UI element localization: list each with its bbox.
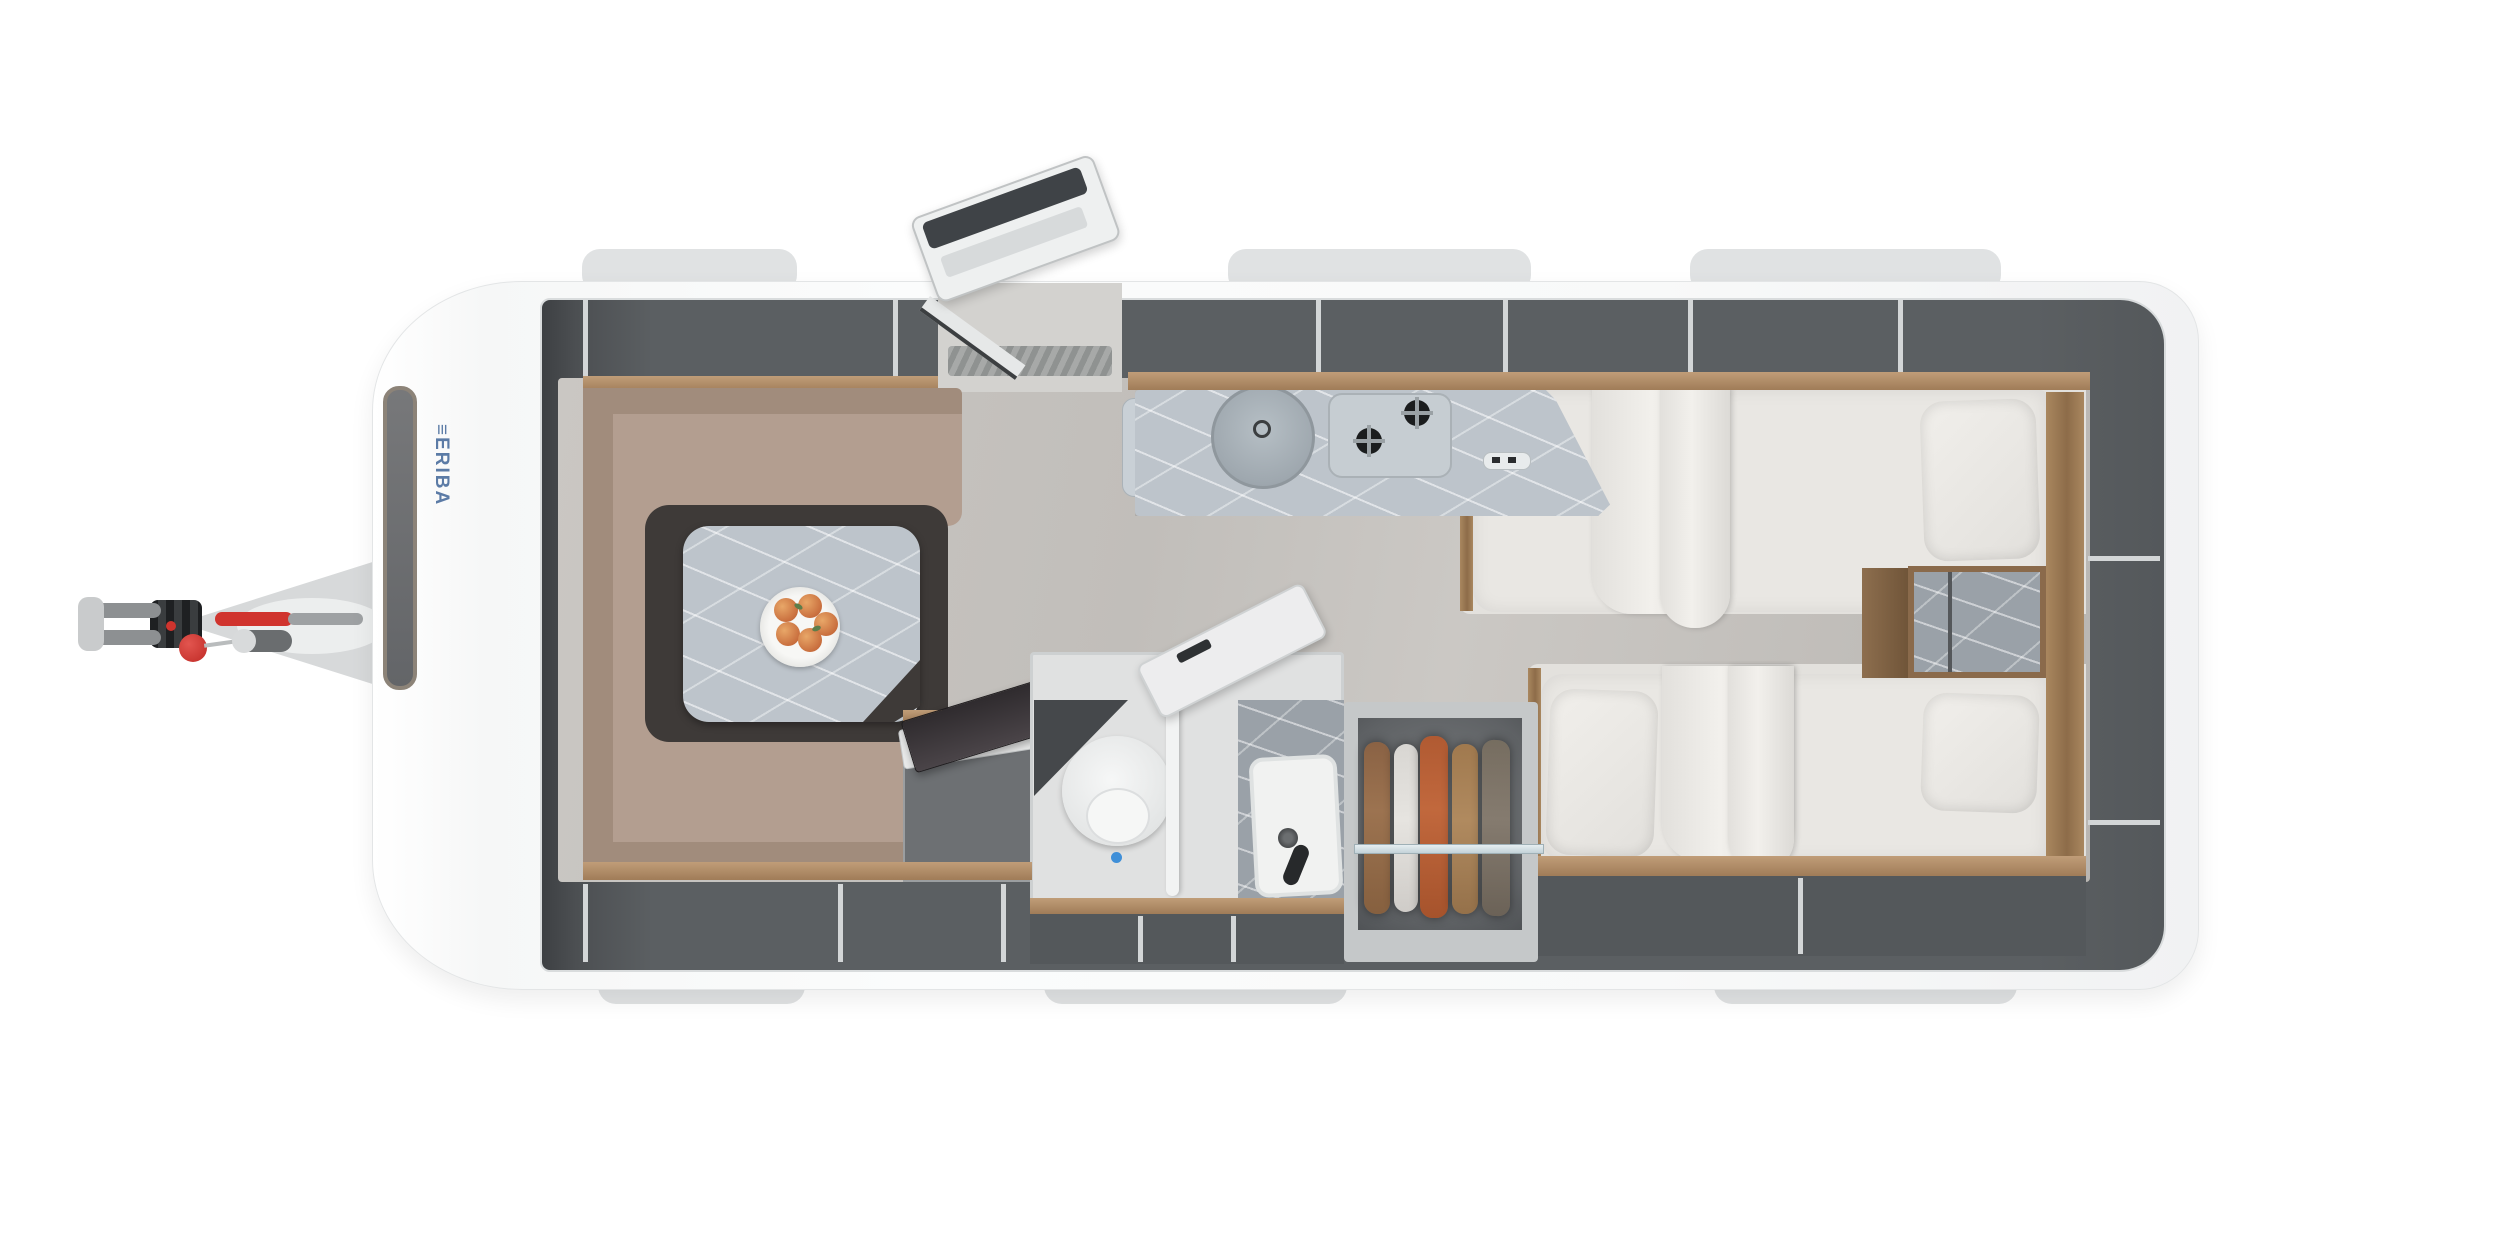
top-locker-divider-5 <box>1688 300 1693 374</box>
dinette-base-divider-1 <box>583 884 588 962</box>
top-locker-divider-6 <box>1898 300 1903 374</box>
bedside-chest-divider <box>1948 572 1952 672</box>
bed-bench-wood-top <box>1537 856 2086 876</box>
jockey-wheel-knob <box>179 634 207 662</box>
gas-strut-cap <box>232 629 256 653</box>
toilet-flush-button <box>1111 852 1122 863</box>
garment-rust <box>1420 736 1448 918</box>
entry-mat <box>948 346 1112 376</box>
fruit-peach-1 <box>774 598 798 622</box>
garment-brown <box>1364 742 1390 915</box>
hob-burner-left <box>1356 428 1382 454</box>
top-locker-divider-4 <box>1503 300 1508 374</box>
twin-bed-bottom-pillow <box>1920 692 2040 814</box>
dinette-backrest-top <box>583 388 962 416</box>
hitch-safety-dot <box>166 621 176 631</box>
top-locker-divider-2 <box>893 300 898 378</box>
hitch-coupling-prong-top <box>95 603 161 618</box>
headboard-panel <box>2046 392 2084 862</box>
brand-logo-text: ERIBA <box>431 437 452 506</box>
bathroom-base-compartments <box>1030 914 1344 964</box>
wardrobe-rail <box>1354 844 1544 854</box>
hob-burner-right <box>1404 400 1430 426</box>
handbrake-lever-red <box>215 612 293 626</box>
shower-drain <box>1278 828 1298 848</box>
twin-bed-bottom-duvet-fold-2 <box>1728 666 1794 872</box>
dinette-base-divider-3 <box>1001 884 1006 962</box>
kitchen-hob <box>1328 393 1452 478</box>
bathroom-base-divider-1 <box>1138 916 1143 962</box>
bathroom-base-divider-2 <box>1231 916 1236 962</box>
bathroom-base-wood <box>1030 898 1344 914</box>
bedside-chest <box>1908 566 2046 678</box>
rear-locker-divider-lower <box>2088 820 2160 825</box>
fruit-peach-4 <box>776 622 800 646</box>
dinette-base-divider-2 <box>838 884 843 962</box>
garment-taupe <box>1482 740 1510 917</box>
front-window <box>383 386 417 690</box>
top-locker-divider-1 <box>583 300 588 378</box>
hitch-coupling-cap <box>78 597 104 651</box>
garment-tan <box>1452 744 1478 914</box>
top-locker-wood-trim-kitchen <box>1128 372 2090 390</box>
kitchen-faucet <box>1253 420 1271 438</box>
brand-logo-mark: ≡ <box>431 424 452 437</box>
twin-bed-top-duvet-fold-2 <box>1660 388 1730 628</box>
toilet-seat <box>1086 788 1150 844</box>
top-locker-divider-3 <box>1316 300 1321 374</box>
caravan-floorplan: ≡ERIBA <box>0 0 2500 1250</box>
hob-igniter-knobs <box>1492 457 1518 463</box>
dinette-base-wood <box>583 862 1032 880</box>
rear-locker-divider-upper <box>2088 556 2160 561</box>
twin-bed-top-pillow <box>1919 398 2041 562</box>
twin-bed-bottom-foot-cushion <box>1545 688 1659 858</box>
bedside-shelf-wood <box>1862 568 1910 678</box>
fruit-peach-5 <box>798 628 822 652</box>
brand-logo: ≡ERIBA <box>430 424 452 506</box>
bed-bench-divider <box>1798 878 1803 954</box>
hitch-coupling-prong-bottom <box>95 630 161 645</box>
handbrake-handle <box>288 613 363 625</box>
dinette-backrest-left <box>583 388 613 866</box>
garment-white <box>1394 744 1418 913</box>
bed-bench-front <box>1537 876 2086 956</box>
bathroom-divider-wall <box>1166 700 1179 896</box>
